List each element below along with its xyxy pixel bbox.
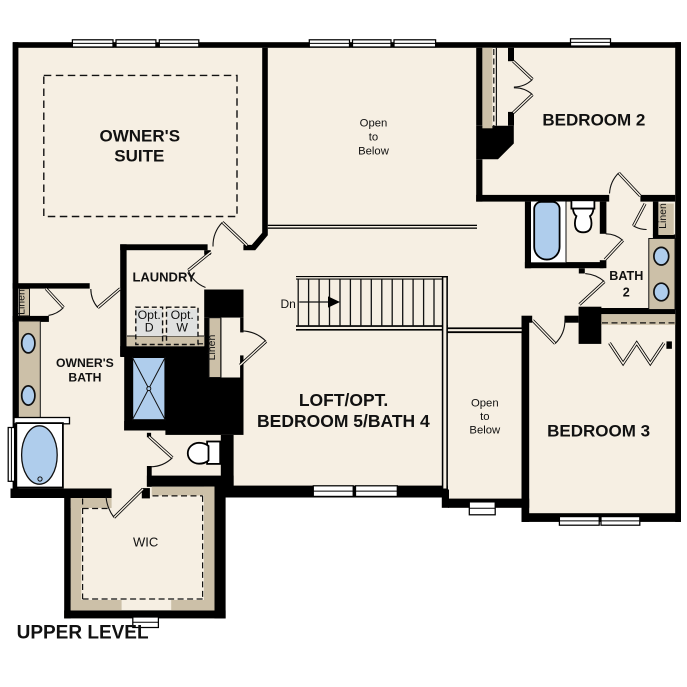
svg-text:Below: Below: [358, 146, 390, 158]
svg-text:OWNER'S: OWNER'S: [100, 127, 181, 146]
svg-text:to: to: [369, 132, 378, 144]
svg-text:BEDROOM 3: BEDROOM 3: [547, 422, 650, 441]
svg-text:LOFT/OPT.: LOFT/OPT.: [299, 390, 388, 410]
svg-text:Open: Open: [360, 118, 388, 130]
svg-text:SUITE: SUITE: [114, 147, 164, 166]
svg-text:to: to: [480, 411, 489, 423]
svg-text:Dn: Dn: [281, 297, 296, 311]
svg-text:Linen: Linen: [206, 335, 218, 361]
svg-text:D: D: [145, 320, 154, 334]
svg-text:2: 2: [623, 285, 630, 299]
svg-text:Below: Below: [469, 425, 501, 437]
svg-text:BEDROOM 5/BATH 4: BEDROOM 5/BATH 4: [257, 411, 430, 431]
svg-text:Linen: Linen: [657, 203, 669, 229]
svg-text:WIC: WIC: [133, 534, 158, 549]
svg-text:BATH: BATH: [68, 371, 101, 385]
svg-text:W: W: [176, 320, 188, 334]
svg-text:UPPER LEVEL: UPPER LEVEL: [17, 623, 149, 644]
svg-text:BEDROOM 2: BEDROOM 2: [542, 111, 645, 130]
svg-text:BATH: BATH: [609, 269, 643, 283]
svg-text:OWNER'S: OWNER'S: [56, 356, 114, 370]
svg-text:Linen: Linen: [15, 289, 27, 315]
svg-text:LAUNDRY: LAUNDRY: [132, 269, 195, 284]
svg-text:Open: Open: [471, 398, 499, 410]
